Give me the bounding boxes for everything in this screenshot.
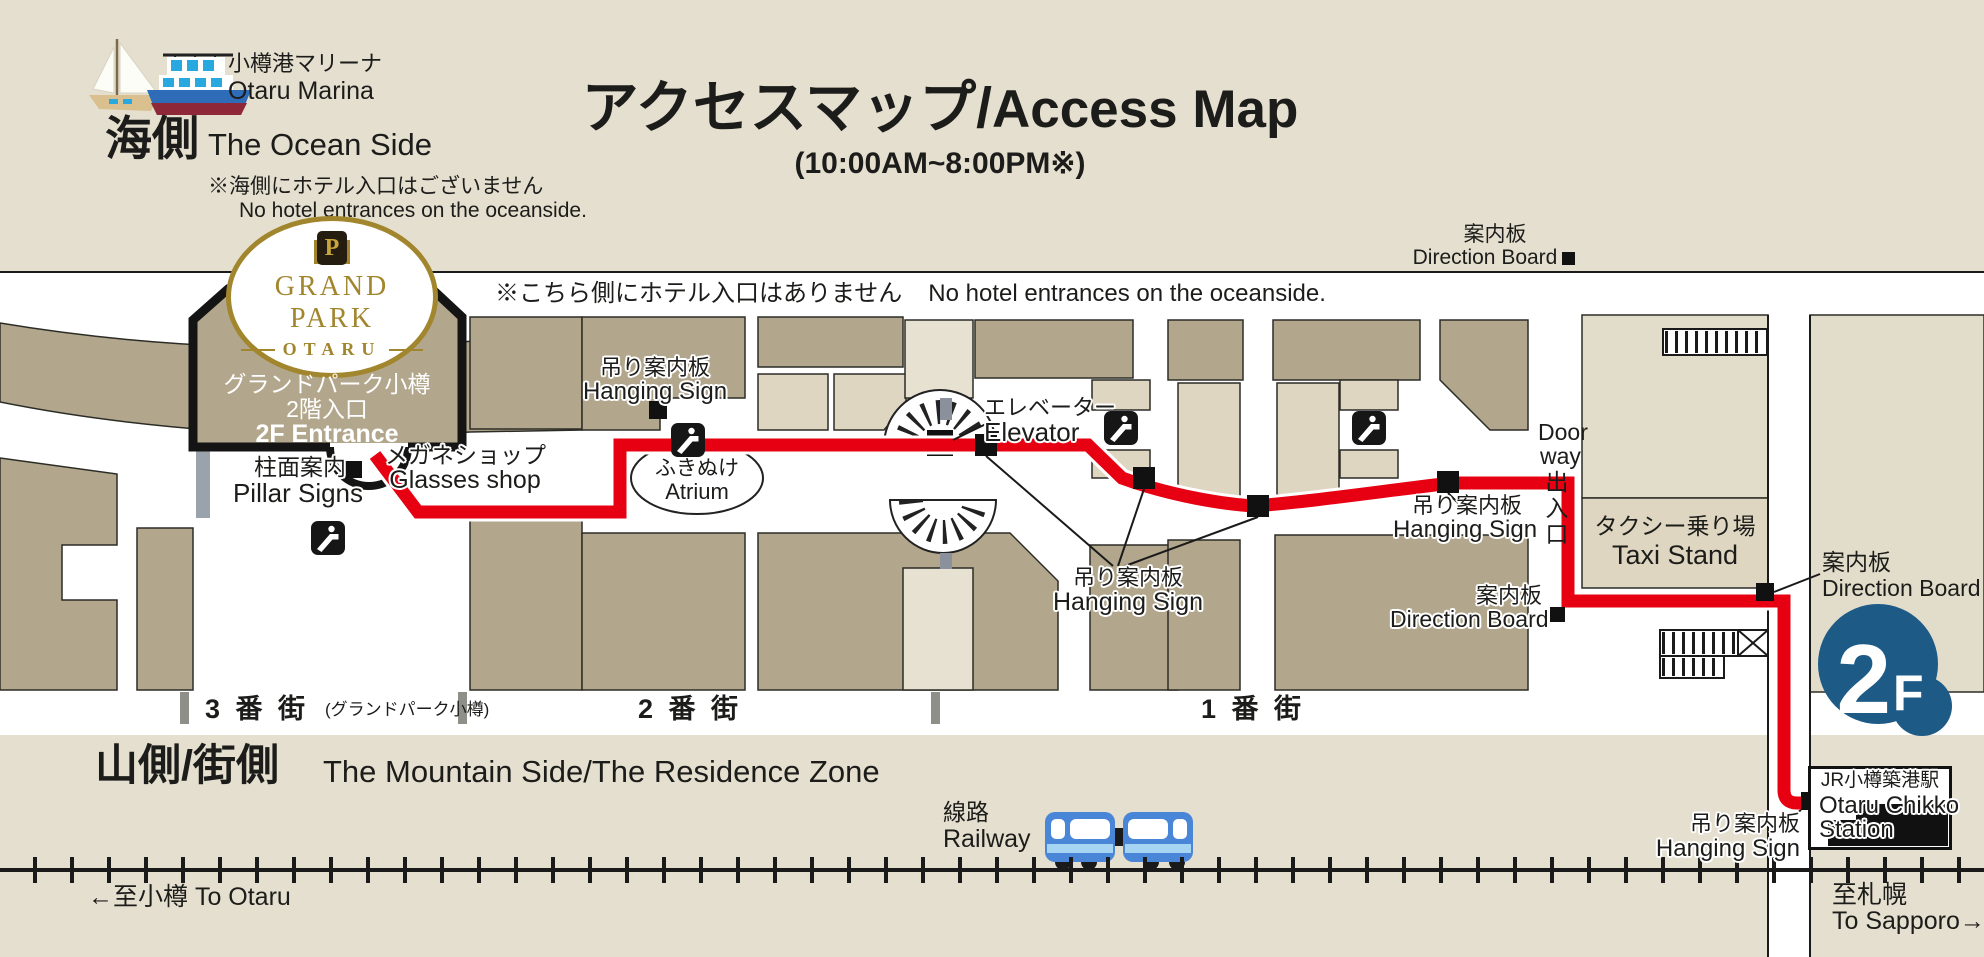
atrium-jp: ふきぬけ xyxy=(637,458,757,481)
direction-board-top-en: Direction Board xyxy=(1410,247,1560,270)
street-2-label: 2 番 街 xyxy=(620,695,760,724)
ocean-note-jp: ※海側にホテル入口はございません xyxy=(208,176,543,199)
to-sapporo-en: To Sapporo→ xyxy=(1832,908,1984,935)
direction-board-right-jp: 案内板 xyxy=(1822,550,1891,575)
to-otaru-label: ←至小樽 To Otaru xyxy=(88,884,291,911)
glasses-shop-jp: メガネショップ xyxy=(385,443,545,468)
floor-2f-badge-text: 2 F xyxy=(1818,604,1942,722)
opening-hours: (10:00AM~8:00PM※) xyxy=(550,148,1330,180)
ocean-note-en: No hotel entrances on the oceanside. xyxy=(239,200,587,223)
pillar-signs-en: Pillar Signs xyxy=(218,479,378,507)
street-1-label: 1 番 街 xyxy=(1183,695,1323,724)
hotel-logo-name: GRAND PARK xyxy=(231,271,433,335)
pillar-signs-jp: 柱面案内 xyxy=(230,455,370,480)
map-top-note-en: No hotel entrances on the oceanside. xyxy=(928,280,1326,307)
hanging-sign-marker-right xyxy=(1437,471,1459,493)
gray-pillar-strip xyxy=(196,450,210,518)
hotel-logo-city-row: OTARU xyxy=(231,339,433,360)
mountain-side-jp: 山側/街側 xyxy=(95,743,279,789)
page-title-jp: アクセスマップ/ xyxy=(582,76,992,140)
hotel-entrance-jp: 2階入口 xyxy=(197,397,457,422)
floor-badge-letter: F xyxy=(1893,668,1924,718)
hanging-sign-right-en: Hanging Sign xyxy=(1385,517,1545,543)
street-3-sublabel: (グランドパーク小樽) xyxy=(325,701,489,719)
page-title: アクセスマップ/Access Map xyxy=(550,78,1330,140)
direction-board-taxi-marker xyxy=(1756,583,1774,601)
hanging-sign-station-jp: 吊り案内板 xyxy=(1660,812,1800,836)
atrium-en: Atrium xyxy=(637,480,757,504)
direction-board-top-jp: 案内板 xyxy=(1420,224,1570,247)
mountain-side-en: The Mountain Side/The Residence Zone xyxy=(323,755,880,788)
street-3-label: 3 番 街 xyxy=(205,695,309,724)
hotel-logo-city: OTARU xyxy=(283,339,382,360)
hanging-sign-station-en: Hanging Sign xyxy=(1650,836,1800,862)
hanging-sign-atrium-jp: 吊り案内板 xyxy=(575,356,735,380)
access-map-page: 小樽港マリーナ Otaru Marina 海側 The Ocean Side ※… xyxy=(0,0,1984,957)
direction-board-center-en: Direction Board xyxy=(1390,607,1542,632)
hotel-crest-icon: P xyxy=(317,231,347,265)
glasses-shop-en: Glasses shop xyxy=(385,467,545,494)
doorway-en-line2: way xyxy=(1540,444,1581,469)
to-sapporo-jp: 至札幌 xyxy=(1832,882,1907,909)
marina-label-en: Otaru Marina xyxy=(228,78,374,105)
grand-park-otaru-logo: P GRAND PARK OTARU xyxy=(226,216,438,378)
railway-label-en: Railway xyxy=(943,826,1031,853)
doorway-jp-vertical: 出入口 xyxy=(1542,470,1567,548)
ocean-side-en: The Ocean Side xyxy=(208,128,432,161)
map-top-note: ※こちら側にホテル入口はありませんNo hotel entrances on t… xyxy=(495,281,1326,307)
railway-line xyxy=(0,868,1984,872)
taxi-stand-en: Taxi Stand xyxy=(1585,541,1765,570)
hanging-sign-marker-2 xyxy=(1133,467,1155,489)
logo-dash-right xyxy=(389,349,423,351)
direction-board-top-marker xyxy=(1562,252,1575,265)
page-title-en: Access Map xyxy=(992,80,1298,139)
floor-badge-number: 2 xyxy=(1836,636,1891,722)
logo-dash-left xyxy=(241,349,275,351)
railway-label-jp: 線路 xyxy=(943,800,989,825)
hanging-sign-right-jp: 吊り案内板 xyxy=(1392,494,1542,518)
escalator-icon-atrium xyxy=(671,423,705,457)
escalator-icon-east xyxy=(1352,411,1386,445)
direction-board-center-jp: 案内板 xyxy=(1390,584,1542,608)
direction-board-center-marker xyxy=(1550,607,1565,622)
hotel-name-jp: グランドパーク小樽 xyxy=(197,372,457,397)
escalator-icon-3rd-street xyxy=(311,521,345,555)
hanging-sign-atrium-en: Hanging Sign xyxy=(575,379,735,405)
ocean-side-jp: 海側 xyxy=(105,114,199,165)
marina-boats-icon xyxy=(89,39,251,115)
station-name-en2: Station xyxy=(1819,817,1894,843)
taxi-stand-jp: タクシー乗り場 xyxy=(1585,514,1765,539)
hanging-sign-center-en: Hanging Sign xyxy=(1048,589,1208,616)
station-name-jp: JR小樽築港駅 xyxy=(1811,771,1949,792)
hanging-sign-center-jp: 吊り案内板 xyxy=(1048,566,1208,590)
elevator-en: Elevator xyxy=(984,418,1079,446)
marina-label-jp: 小樽港マリーナ xyxy=(228,52,382,76)
direction-board-right-en: Direction Board xyxy=(1822,576,1981,601)
map-top-note-jp: ※こちら側にホテル入口はありません xyxy=(495,280,902,307)
otaru-chikko-station: JR小樽築港駅 Otaru Chikko Station xyxy=(1808,766,1952,850)
doorway-en-line1: Door xyxy=(1538,420,1588,445)
hanging-sign-marker-3 xyxy=(1247,495,1269,517)
